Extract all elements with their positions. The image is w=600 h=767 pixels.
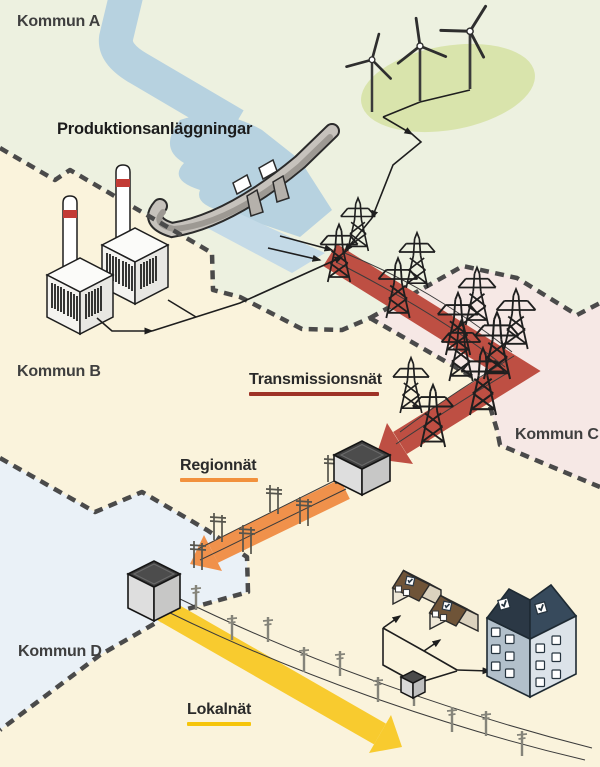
kommun-b-label: Kommun B <box>17 363 101 381</box>
grid-infographic: Kommun A Produktionsanläggningar Kommun … <box>0 0 600 767</box>
chimney-icon <box>63 196 77 268</box>
regional-label-text: Regionnät <box>180 457 258 475</box>
chimney-band <box>116 179 130 187</box>
roof-window-icon <box>498 598 510 610</box>
transmission-label-text: Transmissionsnät <box>249 371 382 389</box>
chimney-icon <box>116 165 130 240</box>
kommun-c-label: Kommun C <box>515 426 599 444</box>
regional-underline <box>180 478 258 482</box>
transmission-underline <box>249 392 379 396</box>
apartment-building <box>487 585 576 697</box>
local-label: Lokalnät <box>187 701 251 726</box>
service-line-apartment <box>457 670 490 671</box>
chimney-band <box>63 210 77 218</box>
production-label: Produktionsanläggningar <box>57 120 252 139</box>
local-label-text: Lokalnät <box>187 701 251 719</box>
distribution-box <box>401 671 425 698</box>
transformer-station-secondary <box>128 561 180 621</box>
transmission-label: Transmissionsnät <box>249 371 382 396</box>
kommun-a-label: Kommun A <box>17 13 100 31</box>
local-underline <box>187 722 251 726</box>
roof-window-icon <box>535 602 547 614</box>
regional-label: Regionnät <box>180 457 258 482</box>
kommun-d-label: Kommun D <box>18 643 102 661</box>
